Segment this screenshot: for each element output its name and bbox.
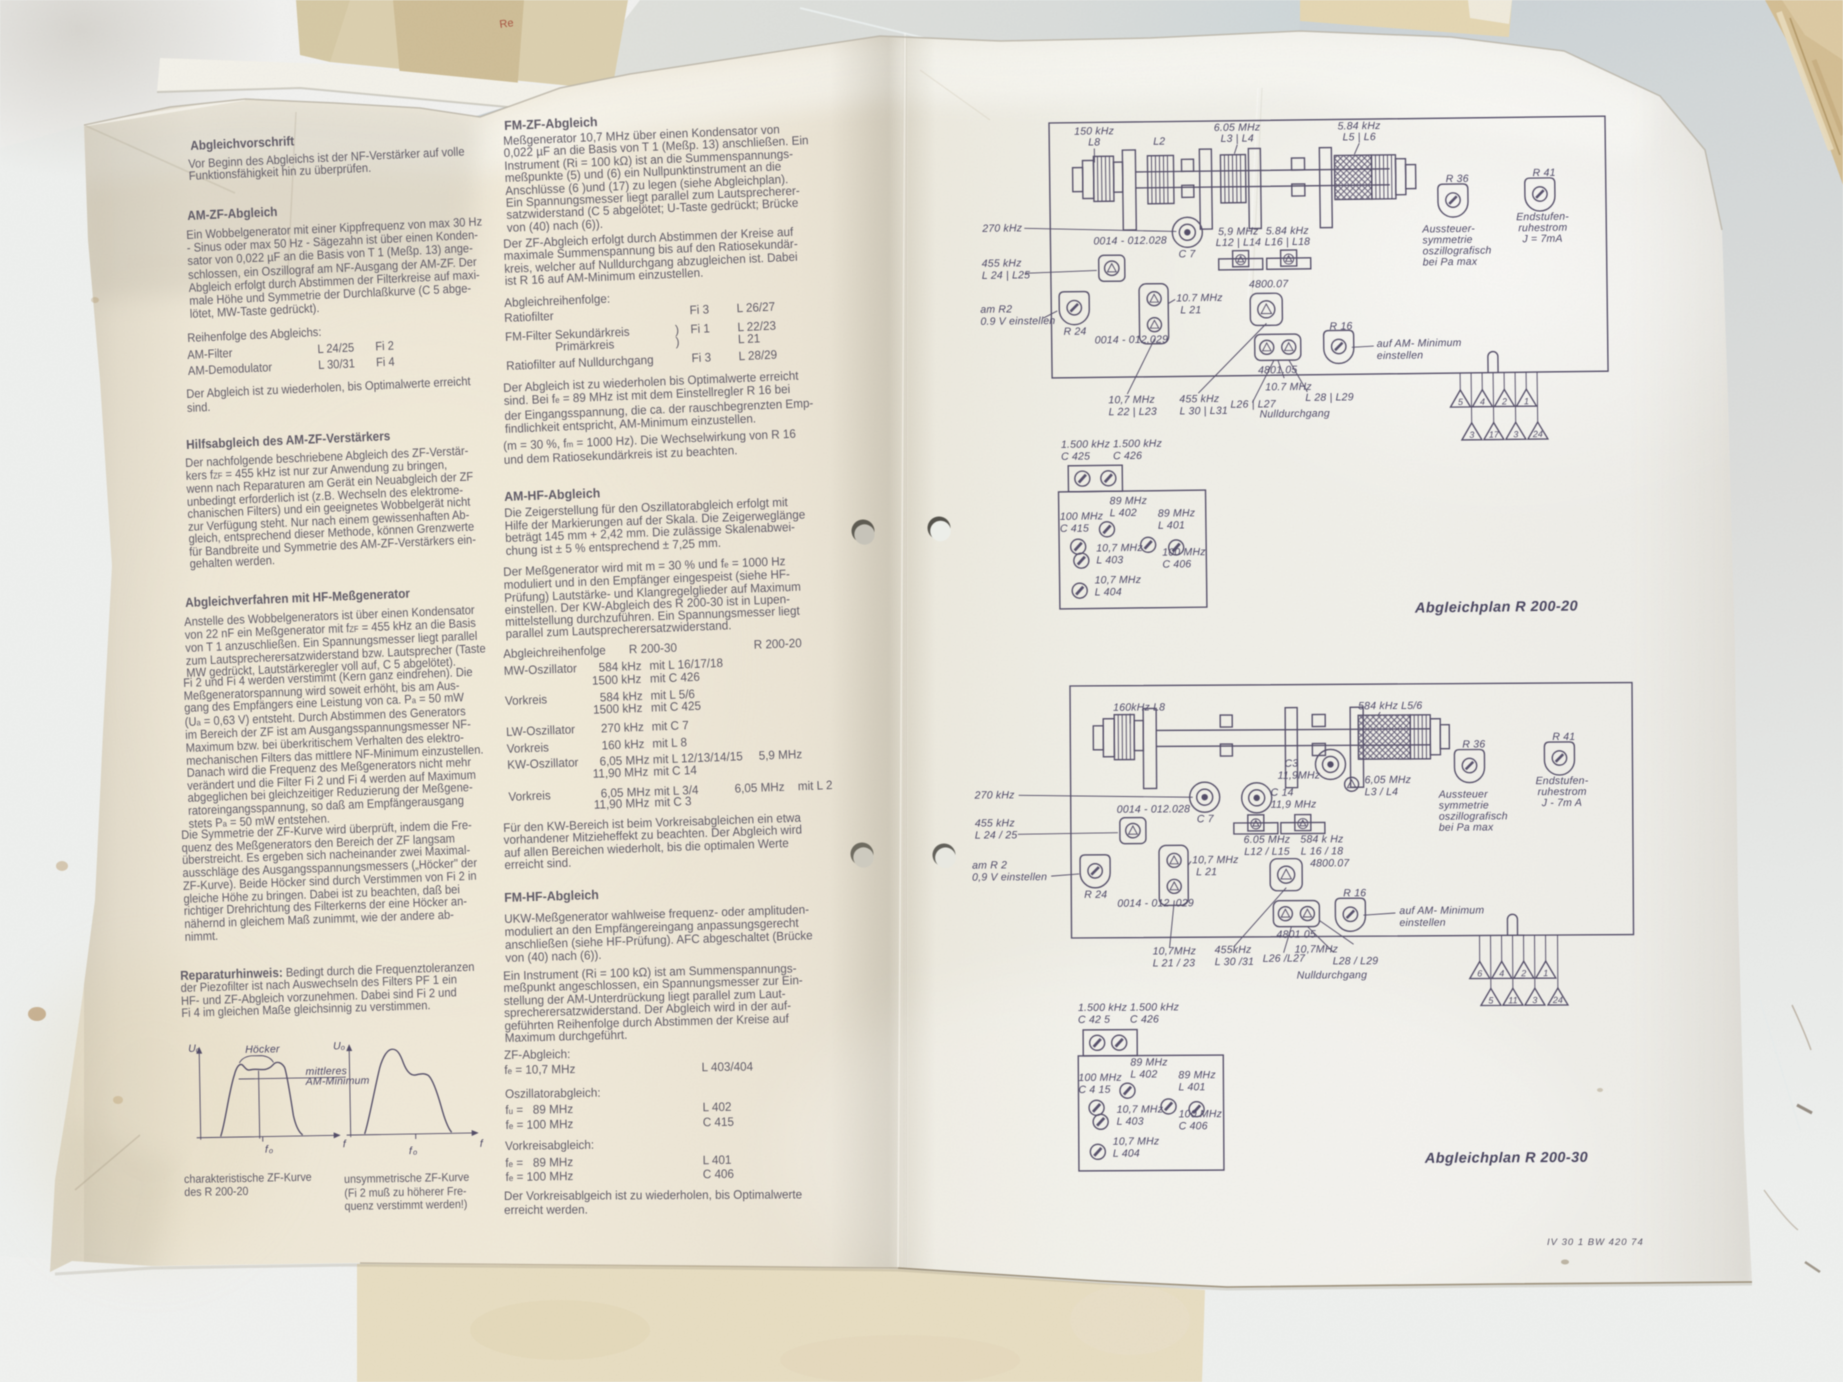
svg-text:L 403: L 403 (1096, 554, 1123, 566)
svg-text:L 30 /31: L 30 /31 (1215, 956, 1254, 968)
svg-text:10.7 MHz: 10.7 MHz (1176, 292, 1223, 305)
svg-text:Uₒ: Uₒ (333, 1040, 345, 1052)
svg-text:3: 3 (1513, 429, 1518, 439)
svg-text:5: 5 (1488, 995, 1494, 1005)
svg-text:L 24 | L25: L 24 | L25 (982, 269, 1030, 282)
svg-text:R 16: R 16 (1329, 320, 1352, 332)
svg-text:11,9 MHz: 11,9 MHz (1271, 798, 1317, 810)
svg-text:R 41: R 41 (1552, 731, 1575, 743)
svg-text:100 MHz: 100 MHz (1060, 510, 1104, 523)
svg-text:C 7: C 7 (1179, 248, 1197, 260)
svg-text:L3 / L4: L3 / L4 (1365, 786, 1399, 798)
svg-text:C 425: C 425 (1061, 451, 1090, 463)
svg-text:L28 / L29: L28 / L29 (1333, 955, 1379, 967)
svg-text:1.500 kHz: 1.500 kHz (1078, 1002, 1128, 1014)
svg-text:4801 05: 4801 05 (1276, 929, 1315, 941)
svg-text:bei Pa max: bei Pa max (1423, 256, 1478, 269)
svg-text:L 30 | L31: L 30 | L31 (1179, 405, 1227, 418)
svg-text:L 28 | L29: L 28 | L29 (1305, 391, 1353, 404)
svg-text:R 24: R 24 (1063, 326, 1086, 338)
svg-text:10,7 MHz: 10,7 MHz (1096, 542, 1143, 555)
svg-text:C 42 5: C 42 5 (1078, 1014, 1110, 1026)
svg-text:R 16: R 16 (1343, 887, 1366, 899)
svg-text:L 401: L 401 (1158, 519, 1185, 531)
svg-text:89 MHz: 89 MHz (1130, 1056, 1168, 1068)
svg-text:einstellen: einstellen (1377, 349, 1424, 362)
svg-text:AM-Minimum: AM-Minimum (305, 1075, 370, 1088)
svg-text:89 MHz: 89 MHz (1178, 1069, 1216, 1081)
svg-text:L 402: L 402 (1130, 1068, 1157, 1080)
svg-text:L12 / L15: L12 / L15 (1244, 846, 1290, 858)
svg-text:Abgleichplan R 200-30: Abgleichplan R 200-30 (1424, 1150, 1588, 1167)
svg-text:L5 | L6: L5 | L6 (1342, 131, 1375, 143)
svg-text:3: 3 (1469, 430, 1474, 440)
svg-text:455 kHz: 455 kHz (1179, 393, 1220, 405)
svg-text:f: f (343, 1138, 347, 1150)
svg-text:6,05 MHz: 6,05 MHz (1365, 774, 1412, 786)
svg-text:L 24 / 25: L 24 / 25 (975, 829, 1018, 841)
svg-text:J = 7mA: J = 7mA (1521, 233, 1562, 246)
svg-text:10,7MHz: 10,7MHz (1153, 945, 1197, 957)
svg-text:11,9MHz: 11,9MHz (1278, 769, 1321, 781)
svg-text:L12 | L14: L12 | L14 (1216, 236, 1262, 249)
svg-text:J - 7m A: J - 7m A (1541, 797, 1582, 809)
svg-text:455kHz: 455kHz (1215, 944, 1252, 956)
svg-text:auf AM- Minimum: auf AM- Minimum (1377, 337, 1462, 350)
svg-text:L16 | L18: L16 | L18 (1265, 236, 1311, 249)
svg-text:C 415: C 415 (1060, 523, 1089, 535)
svg-text:C 4 15: C 4 15 (1078, 1084, 1110, 1096)
svg-text:455 kHz: 455 kHz (982, 257, 1023, 269)
svg-text:0014 - 012.028: 0014 - 012.028 (1117, 803, 1191, 815)
svg-text:89 MHz: 89 MHz (1158, 507, 1196, 519)
svg-text:f ₒ: f ₒ (409, 1145, 419, 1157)
svg-text:160kHz L8: 160kHz L8 (1113, 701, 1165, 713)
svg-text:1.500 kHz: 1.500 kHz (1113, 438, 1163, 451)
svg-text:10,7 MHz: 10,7 MHz (1117, 1103, 1164, 1115)
svg-text:100 MHz: 100 MHz (1078, 1072, 1122, 1084)
svg-text:1: 1 (1524, 396, 1529, 406)
svg-text:f: f (480, 1138, 484, 1150)
svg-text:L 401: L 401 (1178, 1081, 1205, 1093)
svg-text:C 426: C 426 (1113, 450, 1142, 462)
svg-text:L8: L8 (1088, 136, 1100, 148)
svg-text:C3: C3 (1284, 758, 1298, 770)
svg-text:270 kHz: 270 kHz (981, 222, 1023, 235)
svg-text:0014 - 012.028: 0014 - 012.028 (1093, 235, 1167, 248)
svg-text:R 36: R 36 (1446, 173, 1469, 185)
svg-text:L 22 | L23: L 22 | L23 (1108, 406, 1156, 419)
svg-text:0014 - 012.029: 0014 - 012.029 (1095, 334, 1169, 347)
svg-text:bei Pa max: bei Pa max (1439, 821, 1494, 833)
svg-text:584 kHz L5/6: 584 kHz L5/6 (1358, 700, 1422, 712)
svg-text:Nulldurchgang: Nulldurchgang (1260, 408, 1330, 421)
svg-text:6: 6 (1477, 968, 1482, 978)
svg-text:L 21: L 21 (1196, 866, 1217, 878)
svg-text:auf AM- Minimum: auf AM- Minimum (1399, 904, 1484, 917)
svg-text:R 24: R 24 (1084, 889, 1107, 901)
svg-text:0,9 V einstellen: 0,9 V einstellen (972, 871, 1047, 883)
svg-text:0014 - 012 .029: 0014 - 012 .029 (1117, 897, 1194, 909)
svg-text:6.05 MHz: 6.05 MHz (1244, 834, 1291, 846)
svg-text:Abgleichplan R 200-20: Abgleichplan R 200-20 (1414, 599, 1578, 617)
svg-text:C 406: C 406 (1162, 558, 1191, 570)
svg-text:R 36: R 36 (1462, 738, 1485, 750)
svg-text:2: 2 (1501, 396, 1507, 406)
svg-text:4800.07: 4800.07 (1249, 278, 1289, 290)
svg-text:am R2: am R2 (980, 303, 1012, 315)
svg-text:am R 2: am R 2 (972, 859, 1007, 871)
svg-text:4801.05: 4801.05 (1258, 364, 1298, 376)
svg-text:Höcker: Höcker (245, 1043, 280, 1056)
svg-text:270 kHz: 270 kHz (974, 789, 1016, 801)
svg-text:L 21 / 23: L 21 / 23 (1153, 957, 1196, 969)
svg-text:L 16 / 18: L 16 / 18 (1301, 845, 1344, 857)
svg-text:10,7 MHz: 10,7 MHz (1113, 1135, 1160, 1147)
svg-text:10,7 MHz: 10,7 MHz (1108, 394, 1155, 407)
svg-text:10,7 MHz: 10,7 MHz (1095, 574, 1142, 587)
svg-text:IV 30 1 BW 420 74: IV 30 1 BW 420 74 (1547, 1237, 1644, 1248)
svg-text:1.500 kHz: 1.500 kHz (1130, 1001, 1180, 1013)
svg-text:L 403: L 403 (1117, 1116, 1144, 1128)
svg-text:17: 17 (1489, 430, 1500, 440)
svg-text:einstellen: einstellen (1399, 917, 1445, 929)
svg-text:4: 4 (1480, 397, 1485, 407)
svg-text:Uₒ: Uₒ (188, 1043, 200, 1055)
svg-text:584 k Hz: 584 k Hz (1300, 833, 1344, 845)
svg-text:3: 3 (1532, 995, 1537, 1005)
svg-text:L 404: L 404 (1113, 1148, 1140, 1160)
svg-text:C 426: C 426 (1130, 1013, 1159, 1025)
svg-text:C 7: C 7 (1197, 813, 1215, 825)
svg-text:11: 11 (1508, 995, 1517, 1005)
svg-text:10,7 MHz: 10,7 MHz (1192, 854, 1239, 866)
svg-text:5: 5 (1458, 397, 1464, 407)
svg-text:L2: L2 (1153, 136, 1165, 148)
svg-text:f ₒ: f ₒ (265, 1143, 275, 1155)
svg-text:4: 4 (1499, 968, 1504, 978)
svg-text:Nulldurchgang: Nulldurchgang (1297, 969, 1367, 981)
svg-text:C 406: C 406 (1179, 1120, 1208, 1132)
svg-text:2: 2 (1520, 968, 1526, 978)
svg-text:100 MHz: 100 MHz (1179, 1108, 1223, 1120)
svg-text:24: 24 (1532, 429, 1543, 439)
svg-text:L 404: L 404 (1095, 586, 1122, 598)
svg-text:1.500 kHz: 1.500 kHz (1061, 438, 1111, 451)
svg-text:24: 24 (1552, 995, 1563, 1005)
svg-text:455 kHz: 455 kHz (975, 817, 1016, 829)
svg-text:L 402: L 402 (1110, 507, 1137, 519)
svg-text:89 MHz: 89 MHz (1110, 495, 1148, 507)
svg-text:1: 1 (1543, 968, 1548, 978)
svg-text:L3 | L4: L3 | L4 (1220, 132, 1253, 144)
svg-text:L 21: L 21 (1180, 304, 1201, 316)
svg-text:0.9 V einstellen: 0.9 V einstellen (980, 315, 1055, 328)
svg-text:4800.07: 4800.07 (1310, 857, 1350, 869)
svg-text:10,7MHz: 10,7MHz (1295, 943, 1339, 955)
svg-text:C 14: C 14 (1271, 787, 1294, 799)
svg-text:R 41: R 41 (1533, 167, 1556, 179)
svg-text:100 MHz: 100 MHz (1162, 546, 1206, 559)
